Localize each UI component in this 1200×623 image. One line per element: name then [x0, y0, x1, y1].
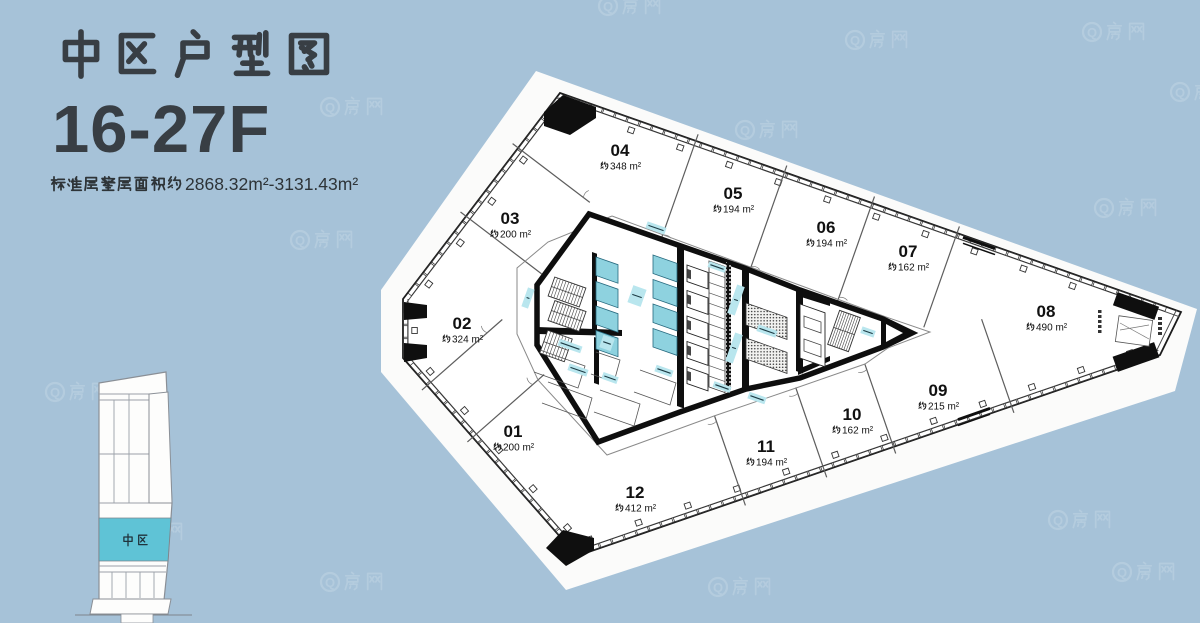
- svg-text:Q: Q: [325, 100, 335, 115]
- svg-text:06: 06: [817, 218, 836, 237]
- svg-text:08: 08: [1037, 302, 1056, 321]
- svg-text:Q: Q: [603, 0, 613, 14]
- svg-text:Q: Q: [1053, 513, 1063, 528]
- svg-text:200 m²: 200 m²: [503, 443, 535, 454]
- svg-text:194 m²: 194 m²: [756, 458, 788, 469]
- svg-text:194 m²: 194 m²: [723, 205, 755, 216]
- svg-text:Q: Q: [1117, 565, 1127, 580]
- svg-text:Q: Q: [713, 580, 723, 595]
- svg-text:01: 01: [504, 422, 523, 441]
- svg-text:Q: Q: [325, 575, 335, 590]
- svg-text:348 m²: 348 m²: [610, 162, 642, 173]
- svg-text:Q: Q: [1175, 85, 1185, 100]
- svg-text:Q: Q: [850, 33, 860, 48]
- svg-text:2868.32m²-3131.43m²: 2868.32m²-3131.43m²: [185, 174, 358, 194]
- svg-text:162 m²: 162 m²: [898, 263, 930, 274]
- svg-text:16-27F: 16-27F: [52, 92, 270, 167]
- svg-text:02: 02: [453, 314, 472, 333]
- svg-text:412 m²: 412 m²: [625, 504, 657, 515]
- svg-text:05: 05: [724, 184, 743, 203]
- svg-text:200 m²: 200 m²: [500, 230, 532, 241]
- svg-text:162 m²: 162 m²: [842, 426, 874, 437]
- svg-text:09: 09: [929, 381, 948, 400]
- svg-text:Q: Q: [740, 123, 750, 138]
- svg-text:10: 10: [843, 405, 862, 424]
- svg-text:490 m²: 490 m²: [1036, 323, 1068, 334]
- svg-text:Q: Q: [50, 385, 60, 400]
- svg-text:194 m²: 194 m²: [816, 239, 848, 250]
- svg-text:Q: Q: [295, 233, 305, 248]
- svg-text:324 m²: 324 m²: [452, 335, 484, 346]
- svg-text:215 m²: 215 m²: [928, 402, 960, 413]
- svg-text:04: 04: [611, 141, 630, 160]
- svg-text:12: 12: [626, 483, 645, 502]
- svg-text:Q: Q: [1087, 25, 1097, 40]
- svg-text:11: 11: [757, 437, 775, 456]
- svg-text:Q: Q: [1099, 201, 1109, 216]
- svg-text:07: 07: [899, 242, 918, 261]
- svg-text:03: 03: [501, 209, 520, 228]
